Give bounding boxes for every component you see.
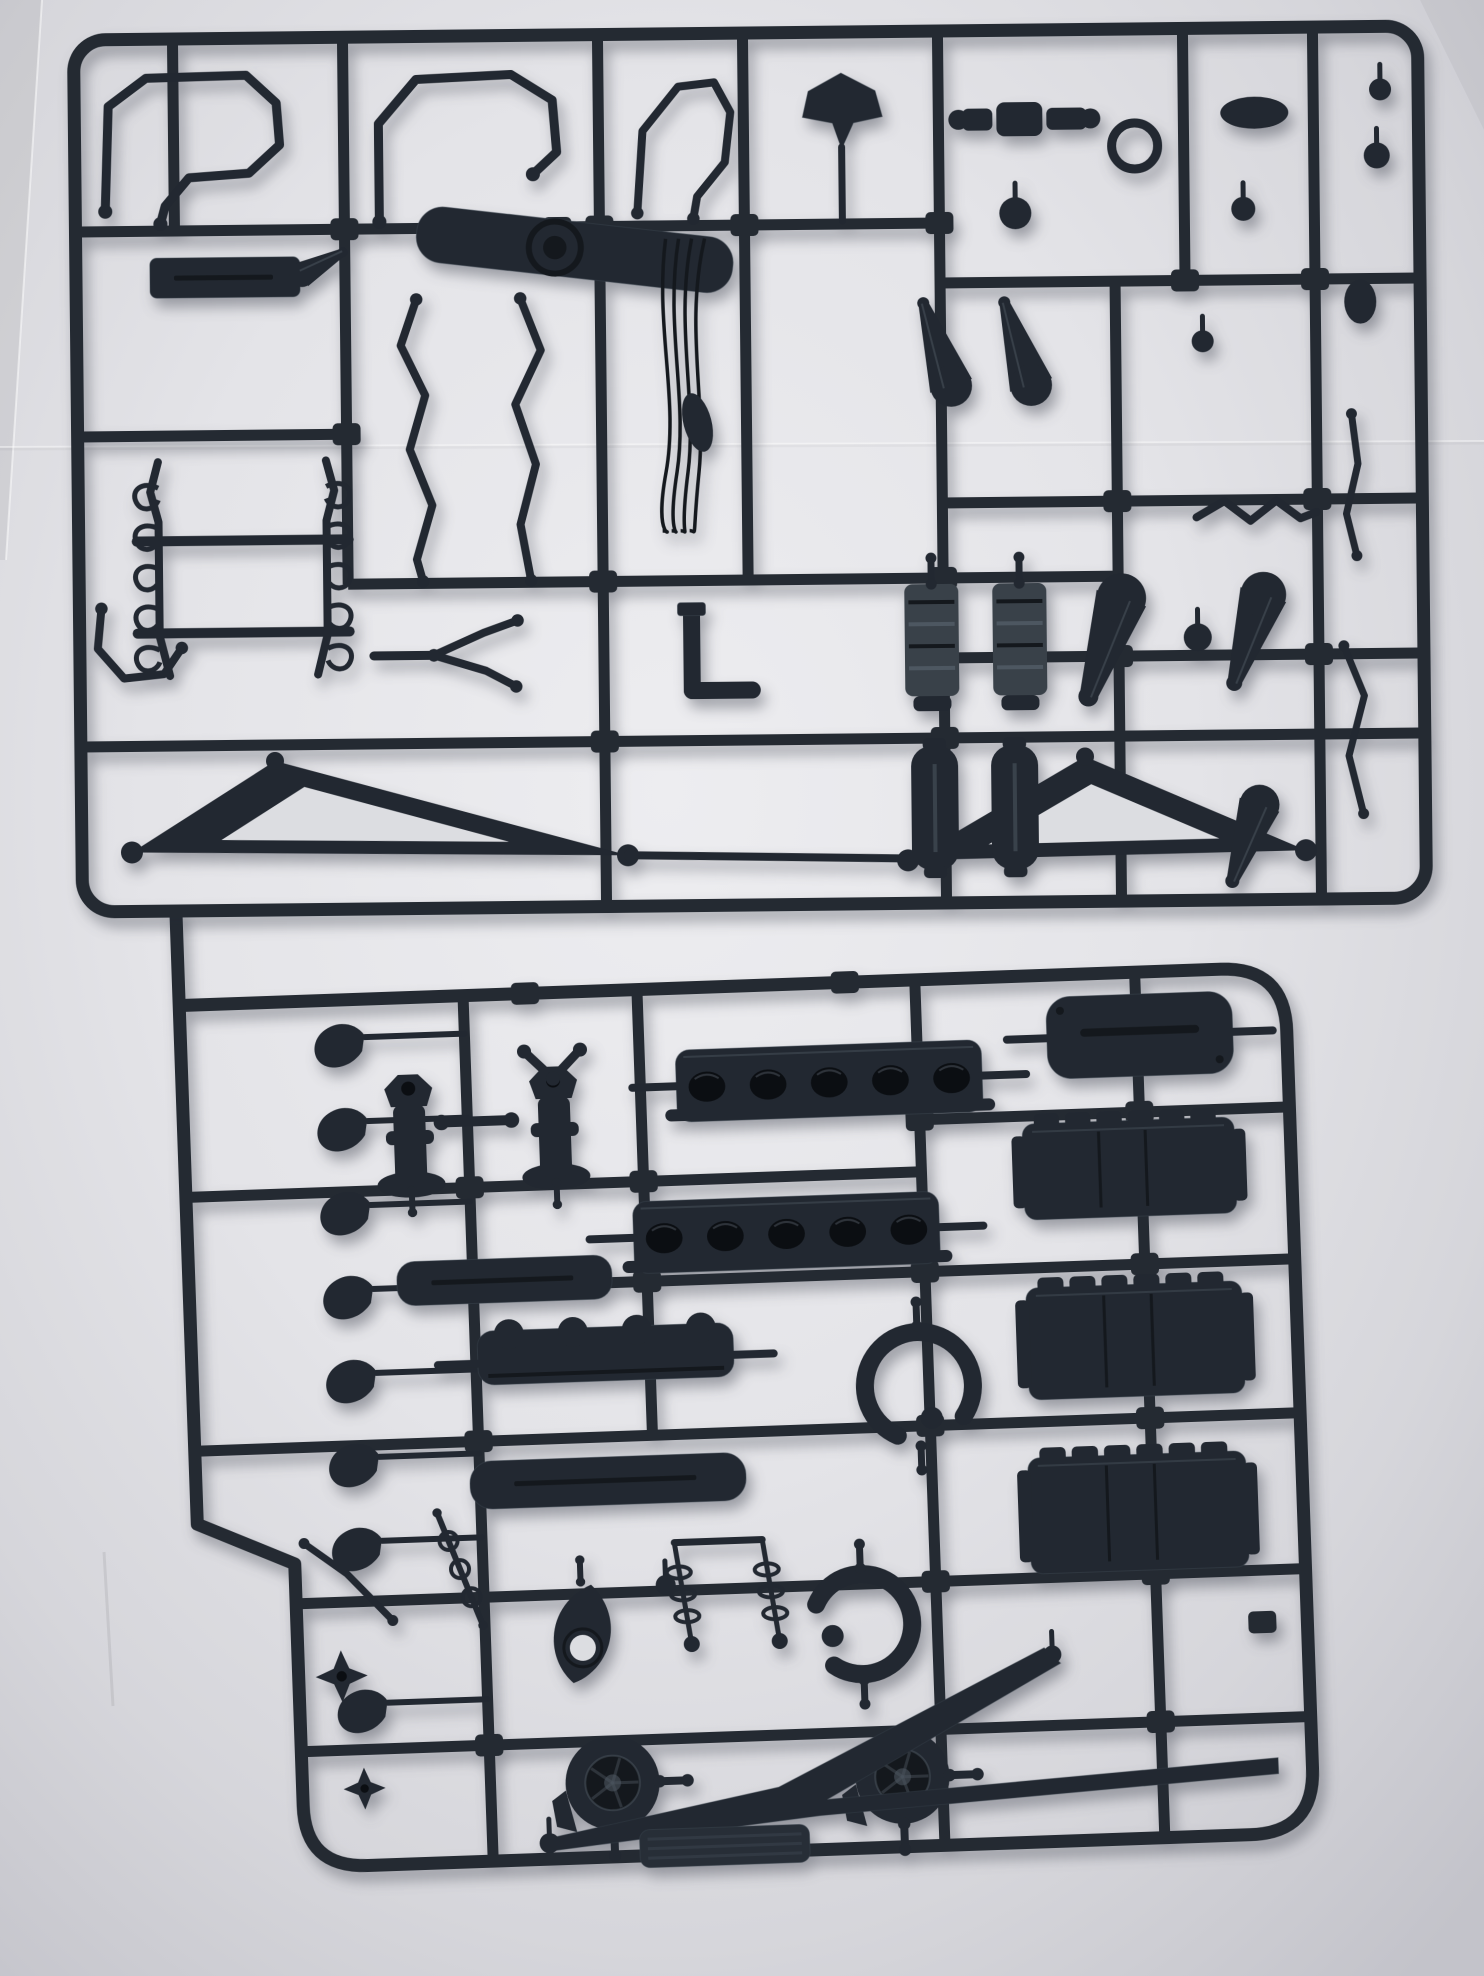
gate-pad [629, 1170, 658, 1193]
gate-pad [464, 1430, 493, 1453]
part-flat-cover [396, 1255, 612, 1306]
gate-pad [1171, 269, 1199, 291]
part-silencer [991, 737, 1039, 877]
gate-pad [830, 971, 859, 994]
gate-pad [730, 214, 758, 236]
gate-pad [1303, 488, 1331, 510]
sprue-photo-canvas [0, 0, 1484, 1976]
gate-pad [455, 1176, 484, 1199]
part-elbow-pipe [692, 615, 693, 691]
part-engine-block-half [1016, 1440, 1260, 1574]
part-bracket-stem [842, 147, 843, 221]
part-blade-cover [469, 1452, 747, 1510]
part-elbow-pipe [692, 690, 752, 691]
gate-pad [332, 423, 360, 445]
part-cylinder-head [631, 1038, 1027, 1124]
part-silencer [911, 738, 959, 878]
gate-pad [1146, 1710, 1175, 1733]
photo-of-model-kit-sprues [0, 0, 1484, 1976]
gate-pad [1301, 268, 1329, 290]
gate-pad [921, 1570, 950, 1593]
runner [742, 33, 748, 580]
gate-pad [511, 982, 540, 1005]
gate-pad [925, 212, 953, 234]
gate-pad [589, 570, 617, 592]
gate-pad [1248, 1611, 1277, 1634]
gate-pad [1305, 643, 1333, 665]
gate-pad [330, 218, 358, 240]
gate-pad [1136, 1406, 1165, 1429]
gate-pad [475, 1734, 504, 1757]
part-fork-stem [374, 655, 434, 656]
runner [1182, 28, 1185, 280]
part-pipe-flange [677, 602, 705, 615]
gate-pad [591, 730, 619, 752]
part-engine-block-half [1014, 1270, 1256, 1400]
part-molded-tag [639, 1824, 810, 1868]
gate-pad [1130, 1253, 1159, 1276]
part-engine-block-half [1011, 1106, 1249, 1220]
part-box-muffler [150, 257, 300, 299]
part-cylinder-head [588, 1190, 984, 1276]
gate-pad [1103, 490, 1131, 512]
runner [78, 434, 347, 437]
